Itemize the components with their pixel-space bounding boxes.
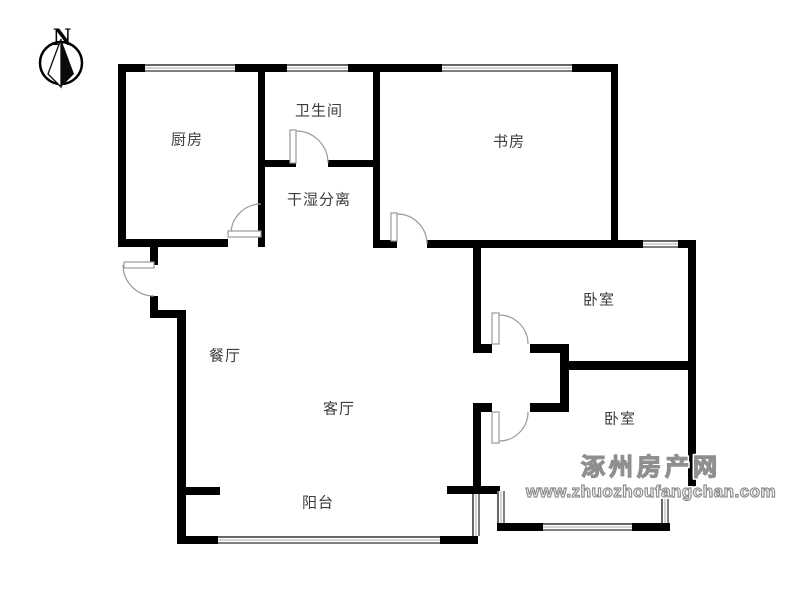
window: [472, 494, 480, 536]
window: [543, 523, 632, 531]
room-label-kitchen: 厨房: [171, 129, 203, 150]
compass: N: [40, 24, 82, 87]
wall-segment: [560, 344, 569, 412]
room-label-study: 书房: [493, 131, 525, 152]
room-label-bedroom-north: 卧室: [583, 289, 615, 310]
wall-segment: [473, 412, 481, 494]
wall-segment: [181, 487, 220, 495]
window: [497, 491, 505, 523]
entry-door: [123, 262, 154, 296]
window: [145, 64, 235, 72]
window: [643, 240, 678, 248]
room-label-dry-wet-zone: 干湿分离: [287, 189, 351, 210]
watermark-site-name: 涿州房产网: [524, 455, 778, 481]
bedroom-north-door: [492, 313, 528, 344]
wall-segment: [118, 64, 126, 247]
wall-segment: [348, 64, 442, 72]
wall-segment: [328, 160, 378, 167]
wall-segment: [530, 403, 567, 412]
wall-segment: [473, 248, 481, 345]
wall-segment: [497, 523, 543, 531]
window: [218, 536, 440, 544]
wall-segment: [258, 70, 265, 247]
watermark-site-url: www.zhuozhoufangchan.com: [524, 482, 778, 501]
wall-segment: [258, 239, 265, 247]
wall-segment: [447, 486, 500, 494]
study-door: [391, 213, 427, 244]
room-label-balcony: 阳台: [302, 492, 334, 513]
room-label-bedroom-south: 卧室: [604, 408, 636, 429]
room-label-living-room: 客厅: [323, 398, 355, 419]
wall-segment: [473, 403, 492, 412]
wall-segment: [567, 361, 696, 370]
window: [287, 64, 348, 72]
wall-segment: [440, 536, 478, 544]
bedroom-south-door: [492, 412, 528, 443]
wall-segment: [177, 310, 186, 544]
kitchen-door: [228, 204, 261, 237]
room-label-dining-room: 餐厅: [209, 345, 241, 366]
room-label-bathroom: 卫生间: [295, 100, 343, 121]
window: [442, 64, 572, 72]
wall-segment: [177, 536, 218, 544]
wall-segment: [611, 70, 618, 248]
wall-segment: [427, 240, 643, 248]
watermark: 涿州房产网 www.zhuozhoufangchan.com: [524, 455, 778, 501]
floorplan-canvas: N: [0, 0, 800, 600]
wall-segment: [118, 239, 228, 247]
bathroom-door: [290, 130, 328, 163]
wall-segment: [632, 523, 670, 531]
wall-segment: [373, 70, 380, 248]
floorplan-drawing: N: [0, 0, 800, 600]
wall-segment: [473, 344, 492, 353]
